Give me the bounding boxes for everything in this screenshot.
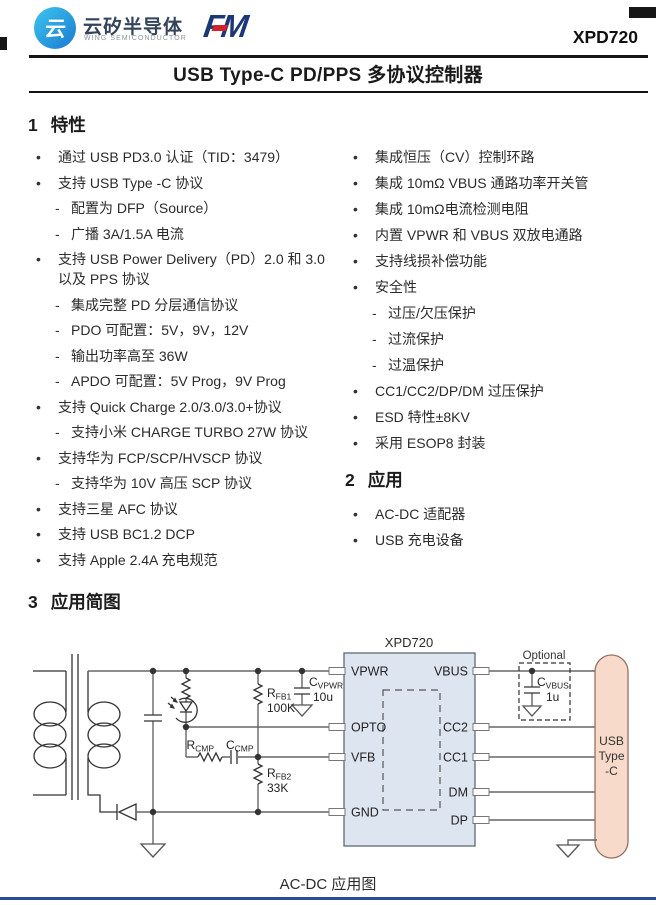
rfb2-resistor (254, 764, 262, 784)
bullet-marker: • (353, 277, 358, 297)
ground-icon (141, 844, 165, 857)
bullet-marker: • (353, 433, 358, 453)
cvpwr-value: 10u (313, 690, 333, 704)
bullet-marker: • (353, 225, 358, 245)
pin-label-vbus: VBUS (434, 665, 468, 679)
feature-text: PDO 可配置：5V，9V，12V (71, 322, 248, 338)
wing-logo-glyph: 云 (43, 13, 67, 43)
usb-label-line3: -C (605, 764, 618, 778)
feature-item: • 支持华为 FCP/SCP/HVSCP 协议 (28, 448, 339, 468)
application-text: USB 充电设备 (375, 532, 464, 548)
pin-gnd (329, 809, 345, 816)
section-diagram-heading: 3应用简图 (28, 589, 121, 614)
feature-item: • 支持 USB Power Delivery（PD）2.0 和 3.0 以及 … (28, 249, 339, 289)
bullet-marker: • (36, 173, 41, 193)
wing-logo-icon: 云 (34, 7, 76, 49)
feature-text: 支持华为 FCP/SCP/HVSCP 协议 (58, 450, 262, 466)
feature-text: 支持 USB Type -C 协议 (58, 175, 203, 191)
feature-text: ESD 特性±8KV (375, 409, 470, 425)
bullet-marker: - (55, 422, 60, 442)
feature-item: - 过流保护 (345, 329, 648, 349)
bullet-marker: - (55, 320, 60, 340)
pin-cc2 (473, 724, 489, 731)
bullet-marker: • (36, 397, 41, 417)
feature-text: 配置为 DFP（Source） (71, 200, 217, 216)
feature-text: 采用 ESOP8 封装 (375, 435, 485, 451)
bullet-marker: - (55, 295, 60, 315)
bullet-marker: - (372, 303, 377, 323)
feature-item: - 支持小米 CHARGE TURBO 27W 协议 (28, 422, 339, 442)
bulk-capacitor (141, 671, 165, 857)
feature-text: 支持 USB Power Delivery（PD）2.0 和 3.0 以及 PP… (58, 251, 325, 287)
title-rule-top (29, 55, 648, 58)
usb-label-line2: Type (598, 749, 624, 763)
datasheet-page: 云 云矽半导体 WING SEMICONDUCTOR FM XPD720 USB… (0, 0, 656, 905)
rfb2-label: RFB2 (267, 766, 292, 782)
feature-text: APDO 可配置：5V Prog，9V Prog (71, 373, 286, 389)
feature-text: 集成恒压（CV）控制环路 (375, 149, 534, 165)
pin-label-dm: DM (449, 786, 468, 800)
section-features-heading: 1特性 (28, 112, 86, 137)
fm-logo-red-bar (212, 25, 228, 31)
features-column-left: • 通过 USB PD3.0 认证（TID：3479） • 支持 USB Typ… (28, 147, 339, 575)
feature-item: - 过温保护 (345, 355, 648, 375)
bullet-marker: • (353, 381, 358, 401)
applications-list: • AC-DC 适配器 • USB 充电设备 (345, 504, 648, 550)
bullet-marker: - (55, 198, 60, 218)
scan-artifact-left (0, 37, 7, 50)
transformer-core (72, 654, 78, 800)
pin-dp (473, 817, 489, 824)
bullet-marker: • (36, 147, 41, 167)
bullet-marker: - (55, 371, 60, 391)
feedback-divider (254, 671, 262, 812)
pin-label-cc2: CC2 (443, 721, 468, 735)
feature-item: - 过压/欠压保护 (345, 303, 648, 323)
pin-vfb (329, 754, 345, 761)
feature-item: • 支持三星 AFC 协议 (28, 499, 339, 519)
bullet-marker: - (372, 329, 377, 349)
ic-name-label: XPD720 (385, 635, 433, 650)
feature-item: • 集成恒压（CV）控制环路 (345, 147, 648, 167)
cvpwr-label: CVPWR (309, 675, 343, 691)
feature-text: 过温保护 (388, 357, 444, 373)
bullet-marker: • (353, 530, 358, 550)
bullet-marker: • (353, 251, 358, 271)
schematic-caption: AC-DC 应用图 (280, 875, 377, 893)
bullet-marker: • (353, 147, 358, 167)
feature-item: • 支持 Apple 2.4A 充电规范 (28, 550, 339, 570)
pin-label-cc1: CC1 (443, 751, 468, 765)
pin-label-dp: DP (451, 814, 468, 828)
rfb1-label: RFB1 (267, 686, 292, 702)
optional-label: Optional (523, 650, 566, 662)
pin-label-vpwr: VPWR (351, 665, 389, 679)
rcmp-resistor (198, 753, 222, 761)
features-column-right: • 集成恒压（CV）控制环路 • 集成 10mΩ VBUS 通路功率开关管 • … (345, 147, 648, 556)
feature-text: 输出功率高至 36W (71, 348, 188, 364)
feature-item: • 支持 Quick Charge 2.0/3.0/3.0+协议 (28, 397, 339, 417)
rfb1-resistor (254, 684, 262, 704)
feature-text: 过压/欠压保护 (388, 305, 476, 321)
bullet-marker: • (36, 499, 41, 519)
pin-vpwr (329, 668, 345, 675)
bullet-marker: - (55, 473, 60, 493)
fm-logo: FM (204, 6, 314, 46)
bullet-marker: • (36, 524, 41, 544)
cvbus-value: 1u (546, 690, 559, 704)
application-schematic: XPD720 VPWR OPTO VFB GND VBUS CC2 CC1 DM… (0, 625, 656, 905)
feature-item: • 采用 ESOP8 封装 (345, 433, 648, 453)
bullet-marker: • (353, 407, 358, 427)
feature-item: • 集成 10mΩ电流检测电阻 (345, 199, 648, 219)
feature-text: 支持三星 AFC 协议 (58, 501, 178, 517)
scan-artifact-top-right (629, 7, 656, 18)
feature-text: 内置 VPWR 和 VBUS 双放电通路 (375, 227, 583, 243)
bullet-marker: • (353, 199, 358, 219)
feature-text: CC1/CC2/DP/DM 过压保护 (375, 383, 544, 399)
bullet-marker: • (36, 448, 41, 468)
pin-label-gnd: GND (351, 806, 379, 820)
cvbus-label: CVBUS (537, 675, 569, 691)
feature-item: - 集成完整 PD 分层通信协议 (28, 295, 339, 315)
rcmp-label: RCMP (186, 738, 214, 754)
feature-item: • 支持 USB Type -C 协议 (28, 173, 339, 193)
pin-label-vfb: VFB (351, 751, 375, 765)
feature-item: • CC1/CC2/DP/DM 过压保护 (345, 381, 648, 401)
rfb2-value: 33K (267, 781, 288, 795)
feature-item: • 支持线损补偿功能 (345, 251, 648, 271)
bullet-marker: - (55, 346, 60, 366)
feature-item: - 支持华为 10V 高压 SCP 协议 (28, 473, 339, 493)
pin-vbus (473, 668, 489, 675)
feature-text: 通过 USB PD3.0 认证（TID：3479） (58, 149, 289, 165)
features-right-list: • 集成恒压（CV）控制环路 • 集成 10mΩ VBUS 通路功率开关管 • … (345, 147, 648, 453)
feature-text: 集成完整 PD 分层通信协议 (71, 297, 238, 313)
feature-item: • 通过 USB PD3.0 认证（TID：3479） (28, 147, 339, 167)
bullet-marker: • (353, 173, 358, 193)
bullet-marker: • (36, 550, 41, 570)
bullet-marker: • (353, 504, 358, 524)
ground-icon (523, 706, 541, 716)
pin-cc1 (473, 754, 489, 761)
usb-label-line1: USB (599, 734, 624, 748)
pin-label-opto: OPTO (351, 721, 386, 735)
application-item: • USB 充电设备 (345, 530, 648, 550)
bullet-marker: - (55, 224, 60, 244)
feature-item: • 支持 USB BC1.2 DCP (28, 524, 339, 544)
feature-text: 过流保护 (388, 331, 444, 347)
feature-text: 支持小米 CHARGE TURBO 27W 协议 (71, 424, 308, 440)
opto-series-resistor (182, 678, 190, 698)
feature-text: 支持 Apple 2.4A 充电规范 (58, 552, 218, 568)
feature-text: 集成 10mΩ VBUS 通路功率开关管 (375, 175, 589, 191)
feature-item: • 内置 VPWR 和 VBUS 双放电通路 (345, 225, 648, 245)
bullet-marker: • (36, 249, 41, 269)
title-rule-bottom (29, 91, 648, 94)
section-applications-heading: 2应用 (345, 467, 648, 492)
feature-item: • 安全性 (345, 277, 648, 297)
feature-item: - APDO 可配置：5V Prog，9V Prog (28, 371, 339, 391)
part-number: XPD720 (573, 27, 638, 48)
feature-item: • ESD 特性±8KV (345, 407, 648, 427)
bullet-marker: - (372, 355, 377, 375)
feature-text: 支持华为 10V 高压 SCP 协议 (71, 475, 252, 491)
feature-text: 广播 3A/1.5A 电流 (71, 226, 184, 242)
page-bottom-rule (0, 897, 656, 900)
feature-item: - 广播 3A/1.5A 电流 (28, 224, 339, 244)
feature-item: - PDO 可配置：5V，9V，12V (28, 320, 339, 340)
pin-opto (329, 724, 345, 731)
ccmp-label: CCMP (226, 738, 254, 754)
feature-text: 支持 Quick Charge 2.0/3.0/3.0+协议 (58, 399, 282, 415)
feature-text: 支持线损补偿功能 (375, 253, 487, 269)
feature-item: - 配置为 DFP（Source） (28, 198, 339, 218)
ground-icon (557, 845, 579, 857)
pin-dm (473, 789, 489, 796)
rectifier-diode (117, 804, 153, 820)
feature-item: • 集成 10mΩ VBUS 通路功率开关管 (345, 173, 648, 193)
application-item: • AC-DC 适配器 (345, 504, 648, 524)
ic-xpd720: XPD720 VPWR OPTO VFB GND VBUS CC2 CC1 DM… (329, 635, 489, 846)
feature-text: 安全性 (375, 279, 417, 295)
rfb1-value: 100K (267, 701, 295, 715)
feature-item: - 输出功率高至 36W (28, 346, 339, 366)
document-title: USB Type-C PD/PPS 多协议控制器 (0, 60, 656, 87)
brand-name-en: WING SEMICONDUCTOR (84, 35, 187, 42)
feature-text: 支持 USB BC1.2 DCP (58, 526, 195, 542)
transformer (33, 654, 120, 812)
application-text: AC-DC 适配器 (375, 506, 465, 522)
feature-text: 集成 10mΩ电流检测电阻 (375, 201, 529, 217)
